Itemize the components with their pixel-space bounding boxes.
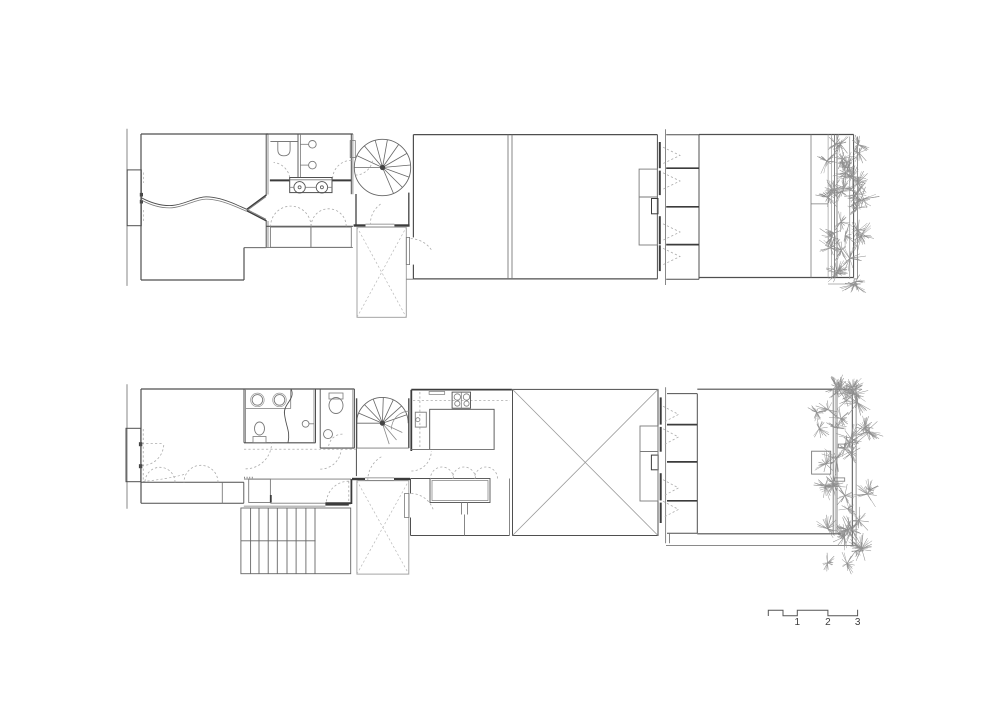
svg-text:1: 1 [795, 617, 801, 628]
svg-text:3: 3 [855, 617, 861, 628]
svg-text:2: 2 [825, 617, 831, 628]
